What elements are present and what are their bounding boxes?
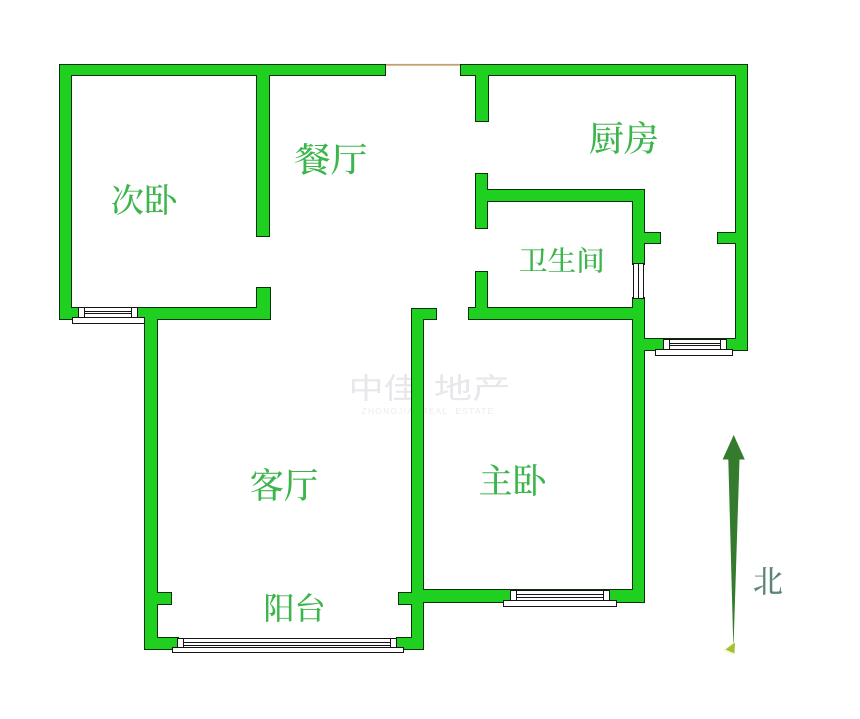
svg-text:ZHONGJIA REAL ESTATE: ZHONGJIA REAL ESTATE xyxy=(362,406,495,416)
